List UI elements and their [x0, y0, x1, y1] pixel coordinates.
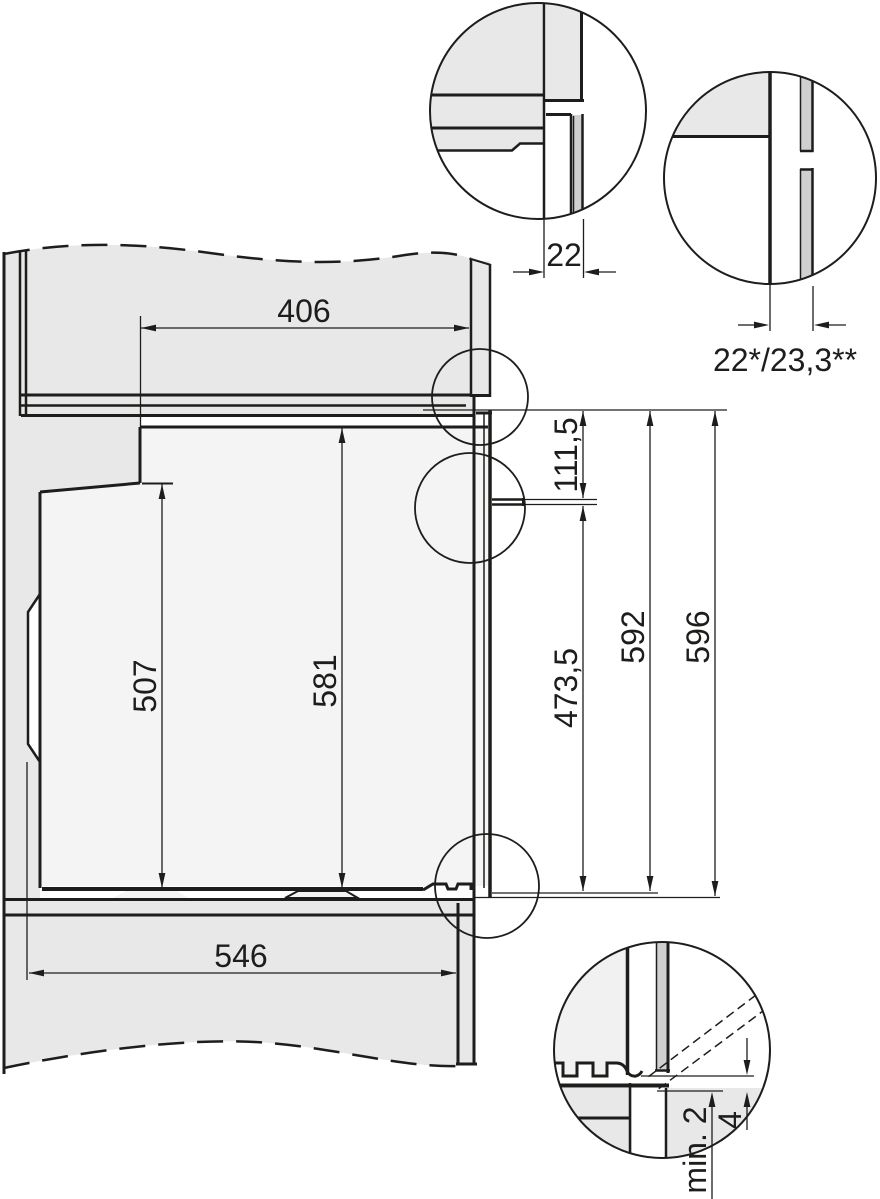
dim-406-label: 406 — [277, 293, 330, 329]
dimension-4: 4 — [712, 1038, 750, 1130]
dimension-22: 22 — [513, 219, 616, 278]
dim-111-5-label: 111,5 — [548, 417, 584, 492]
oven-foot-rear — [113, 891, 189, 898]
oven-foot-front — [285, 891, 358, 898]
dim-546-label: 546 — [214, 938, 267, 974]
dimension-473-5: 473,5 — [548, 506, 586, 891]
oven-bottom-front-profile — [423, 884, 471, 890]
dimension-592: 592 — [615, 411, 653, 891]
rear-bulge-fill — [28, 594, 40, 762]
dimension-22-23-3: 22*/23,3** — [713, 284, 857, 378]
detail-view-front-panel: 22 — [428, 1, 646, 278]
diagram-page: 406 546 507 581 111,5 473,5 592 — [0, 0, 880, 1199]
dim-22-label: 22 — [546, 237, 582, 273]
detail-view-bottom-clearance: min. 2 4 — [552, 940, 772, 1199]
dim-4-label: 4 — [712, 1111, 748, 1129]
dim-592-label: 592 — [615, 610, 651, 663]
dim-min-2-label: min. 2 — [677, 1106, 713, 1193]
oven-body-fill — [42, 428, 488, 886]
dimension-min-2: min. 2 — [677, 1092, 715, 1199]
installation-diagram: 406 546 507 581 111,5 473,5 592 — [0, 0, 880, 1199]
detail-view-door-thickness: 22*/23,3** — [664, 72, 876, 378]
dim-22-23-3-label: 22*/23,3** — [713, 342, 857, 378]
dimension-596: 596 — [680, 411, 718, 896]
door-swing-line-2 — [657, 1008, 767, 1090]
upper-cabinet-fill — [4, 245, 471, 395]
dim-581-label: 581 — [307, 654, 343, 707]
dim-596-label: 596 — [680, 610, 716, 663]
dimension-111-5: 111,5 — [548, 411, 586, 498]
dim-507-label: 507 — [127, 659, 163, 712]
front-panel-fill — [471, 261, 490, 396]
dim-473-5-label: 473,5 — [548, 648, 584, 728]
